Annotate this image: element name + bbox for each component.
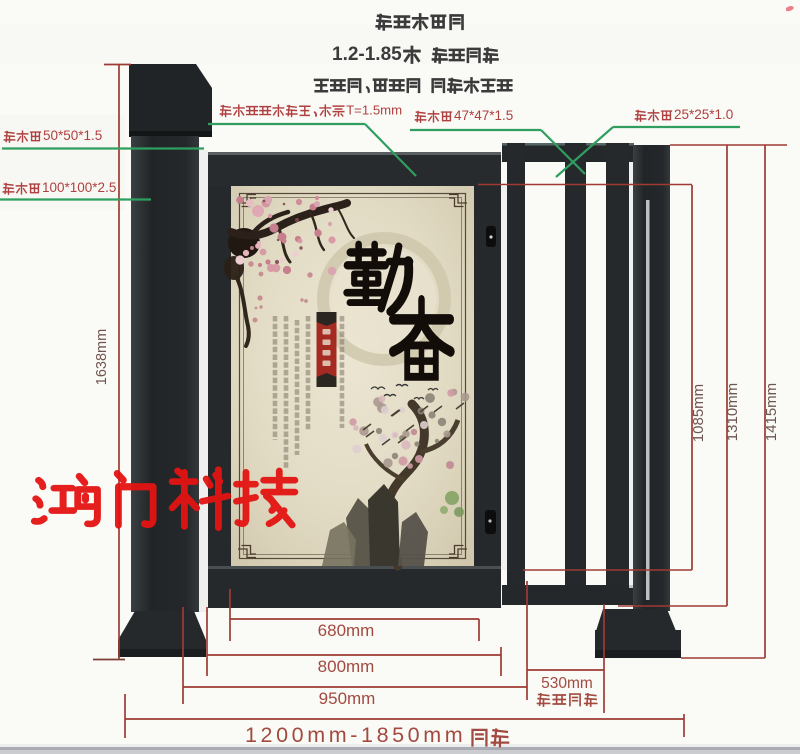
svg-text:25*25*1.0: 25*25*1.0 xyxy=(674,107,733,122)
svg-text:100*100*2.5: 100*100*2.5 xyxy=(42,180,116,195)
svg-text:50*50*1.5: 50*50*1.5 xyxy=(43,128,102,143)
svg-text:1310mm: 1310mm xyxy=(724,383,741,441)
svg-text:1.2-1.85: 1.2-1.85 xyxy=(332,44,402,65)
svg-text:47*47*1.5: 47*47*1.5 xyxy=(454,108,513,123)
svg-text:1085mm: 1085mm xyxy=(690,384,707,442)
svg-text:950mm: 950mm xyxy=(319,689,376,708)
svg-text:T=1.5mm: T=1.5mm xyxy=(346,102,402,117)
svg-text:1200mm-1850mm: 1200mm-1850mm xyxy=(245,723,466,747)
svg-text:530mm: 530mm xyxy=(541,675,593,692)
svg-text:680mm: 680mm xyxy=(318,621,375,640)
svg-text:1638mm: 1638mm xyxy=(94,329,110,385)
svg-text:1415mm: 1415mm xyxy=(763,383,780,441)
svg-text:800mm: 800mm xyxy=(318,657,375,676)
